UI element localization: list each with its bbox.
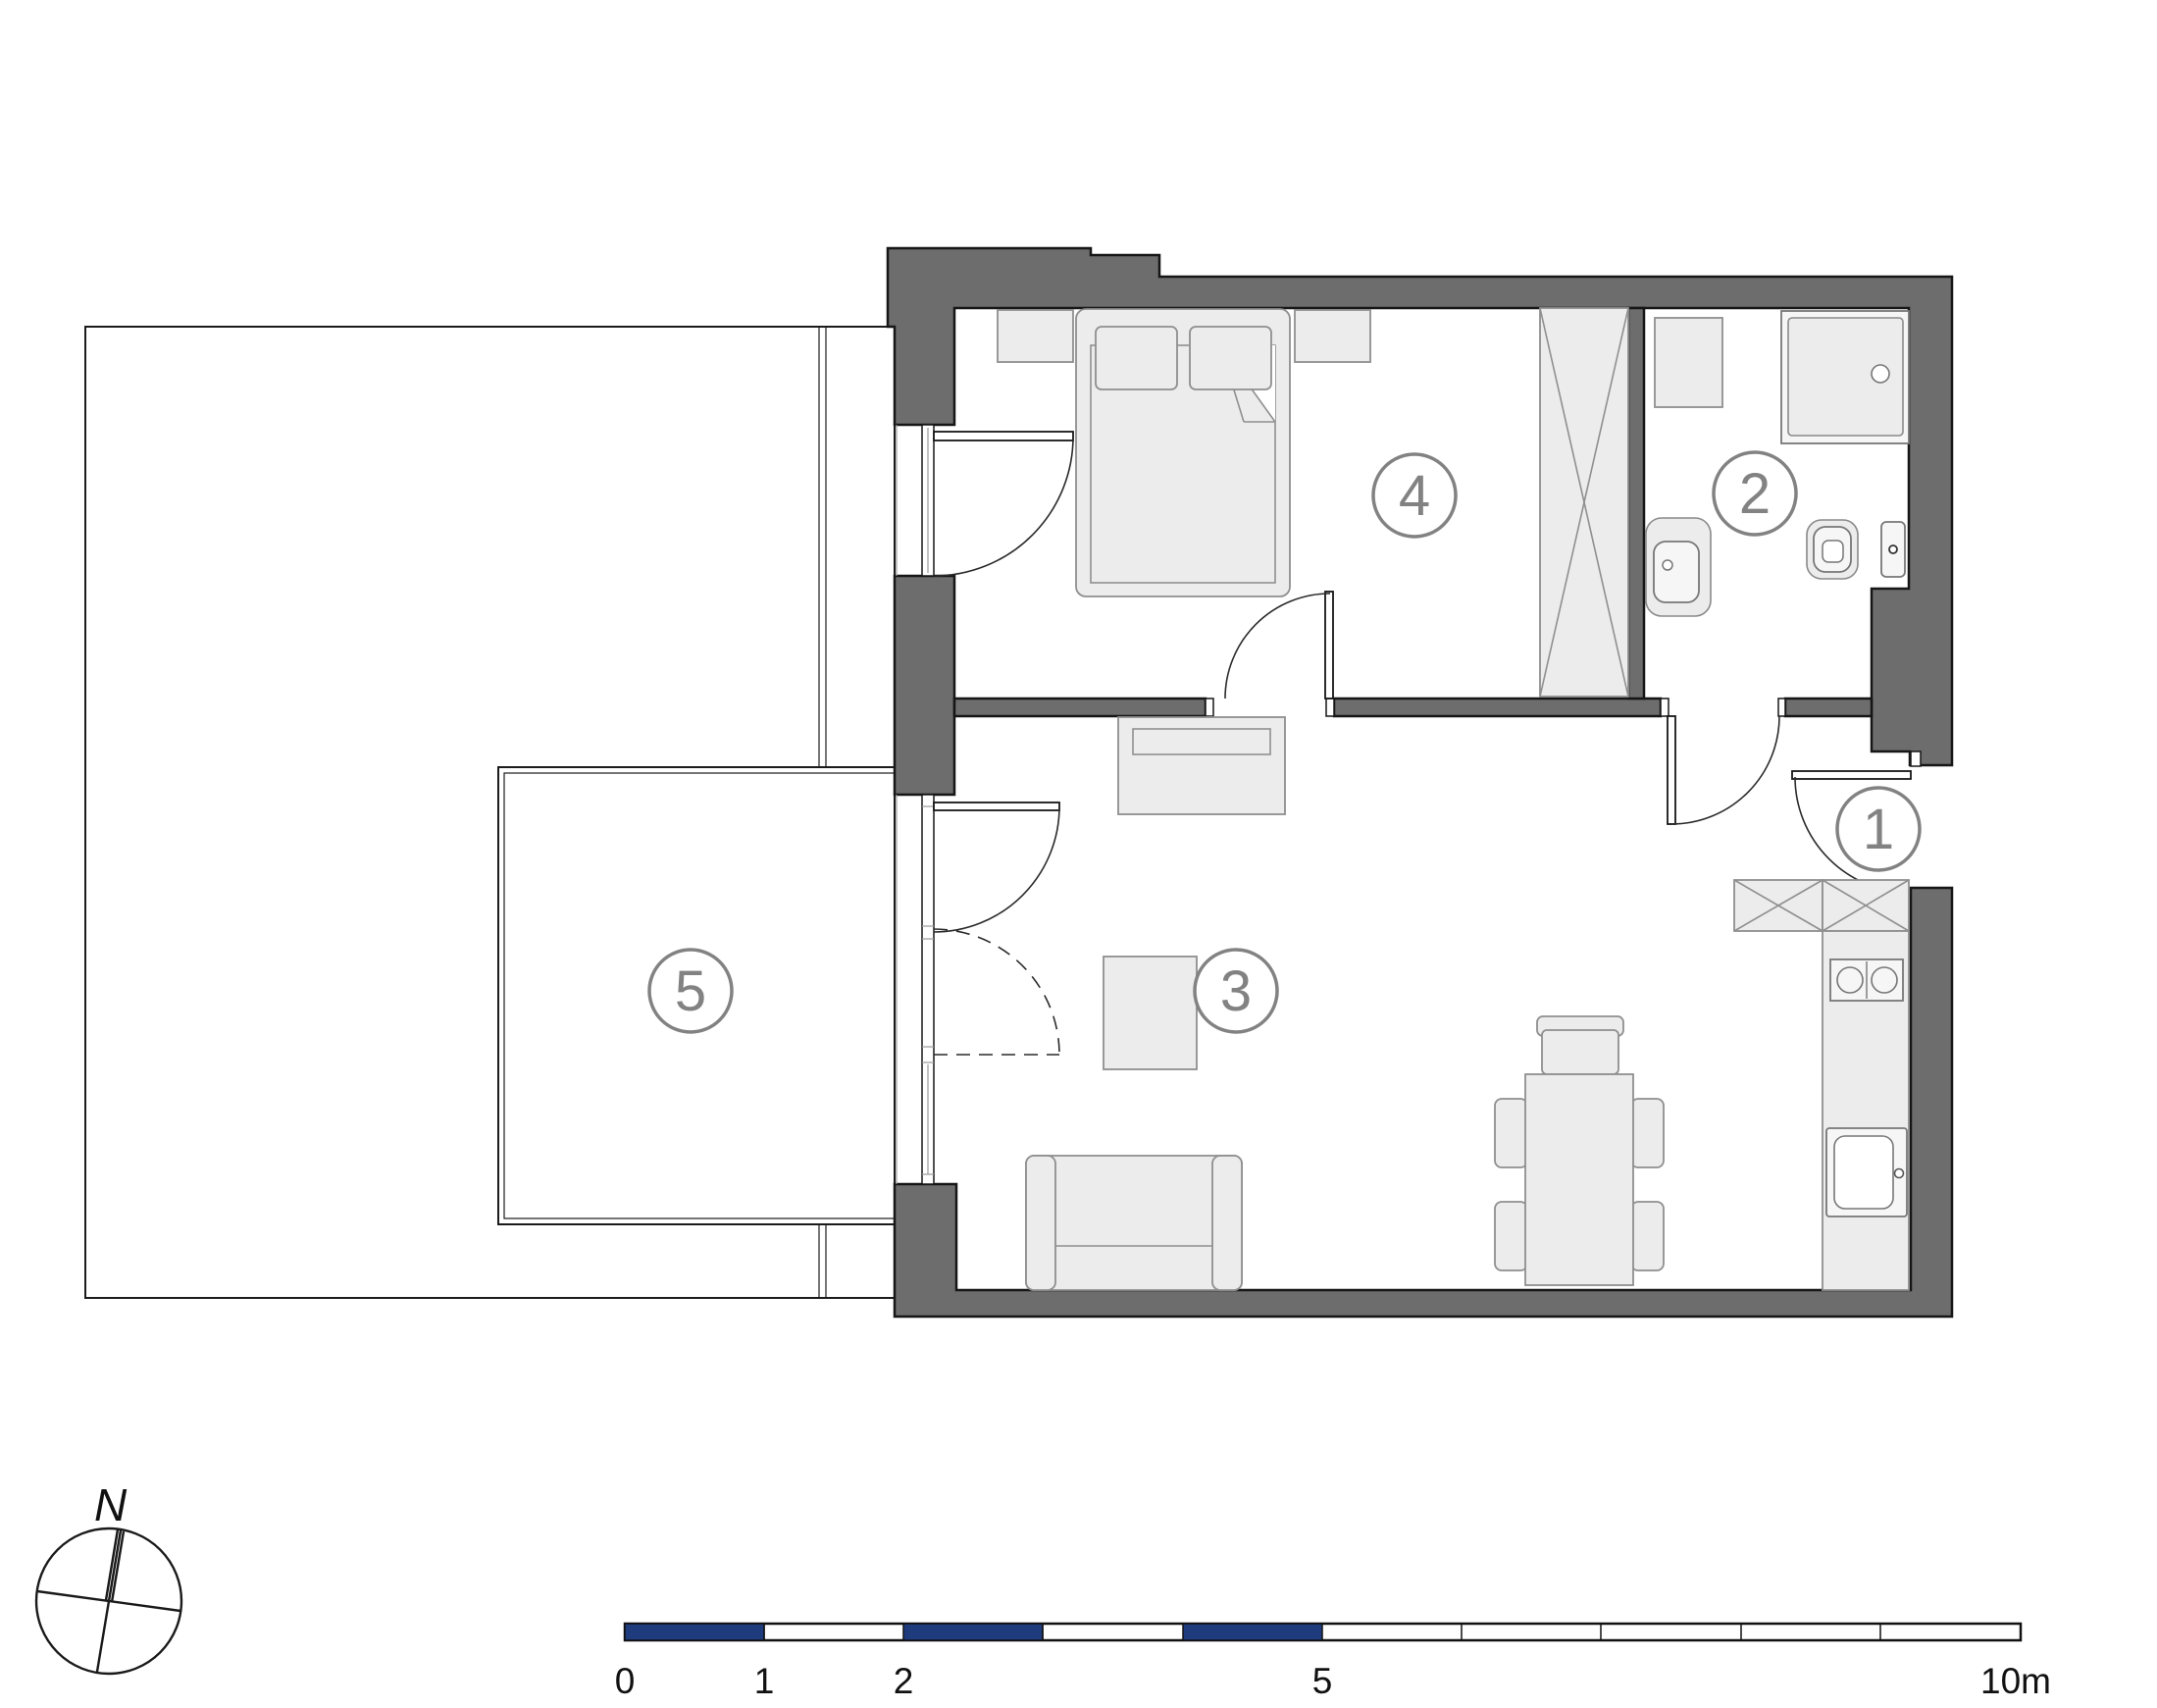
bathroom-door: [1661, 699, 1785, 824]
kitchen-counter: [1823, 931, 1909, 1290]
north-label: N: [94, 1479, 128, 1530]
nightstand: [1295, 310, 1370, 362]
room-label-4: 4: [1373, 454, 1456, 537]
dining-chair: [1631, 1202, 1664, 1270]
toilet-bowl-icon: [1823, 541, 1843, 562]
scale-tick-label: 1: [754, 1661, 775, 1701]
faucet-icon: [1663, 560, 1672, 570]
garden-boundary: [85, 327, 895, 1298]
double-bed: [1076, 309, 1290, 596]
dining-chair: [1631, 1099, 1664, 1167]
kitchen-sink-icon: [1826, 1128, 1907, 1216]
scale-tick-label: 10m: [1980, 1661, 2051, 1701]
garden-door: [922, 425, 1073, 576]
room-label-5: 5: [649, 950, 732, 1032]
dining-chair: [1495, 1099, 1527, 1167]
cooktop-icon: [1830, 959, 1903, 1001]
faucet-icon: [1895, 1169, 1904, 1178]
svg-text:1: 1: [1863, 798, 1894, 861]
pillow: [1096, 327, 1177, 389]
sideboard: [1118, 717, 1285, 814]
scale-tick-label: 5: [1312, 1661, 1333, 1701]
scale-bar: 0 1 2 5 10m: [615, 1624, 2051, 1701]
north-arrow-icon: N: [36, 1479, 181, 1674]
floor-plan-drawing: 1 2 3 4 5 N 0 1 2 5 1: [0, 0, 2157, 1708]
wardrobe-icon: [1540, 308, 1628, 697]
scale-tick-label: 0: [615, 1661, 636, 1701]
coffee-table: [1104, 957, 1197, 1069]
sofa-armrest: [1026, 1156, 1055, 1290]
room-label-1: 1: [1837, 788, 1920, 870]
room-label-2: 2: [1714, 452, 1796, 535]
sofa: [1026, 1156, 1242, 1290]
svg-text:3: 3: [1220, 959, 1252, 1023]
nightstand: [998, 310, 1073, 362]
sofa-armrest: [1212, 1156, 1242, 1290]
shower: [1781, 311, 1909, 443]
balcony-door-window: [922, 795, 1059, 1184]
svg-text:5: 5: [675, 959, 706, 1023]
shower-drain-icon: [1872, 365, 1889, 383]
room-label-3: 3: [1195, 950, 1277, 1032]
flush-button-icon: [1889, 545, 1897, 553]
dining-chair: [1495, 1202, 1527, 1270]
svg-text:4: 4: [1399, 464, 1430, 528]
toilet: [1807, 520, 1905, 579]
washbasin: [1646, 518, 1711, 616]
dining-table: [1525, 1074, 1633, 1285]
dining-chair: [1542, 1030, 1618, 1074]
svg-text:2: 2: [1739, 462, 1771, 526]
washing-machine: [1655, 318, 1722, 407]
bedroom-door: [1206, 592, 1334, 716]
kitchen-upper-cabinets-icon: [1734, 880, 1909, 931]
floor-plan-page: 1 2 3 4 5 N 0 1 2 5 1: [0, 0, 2157, 1708]
dining-set: [1495, 1016, 1664, 1285]
pillow: [1190, 327, 1271, 389]
scale-tick-label: 2: [894, 1661, 914, 1701]
